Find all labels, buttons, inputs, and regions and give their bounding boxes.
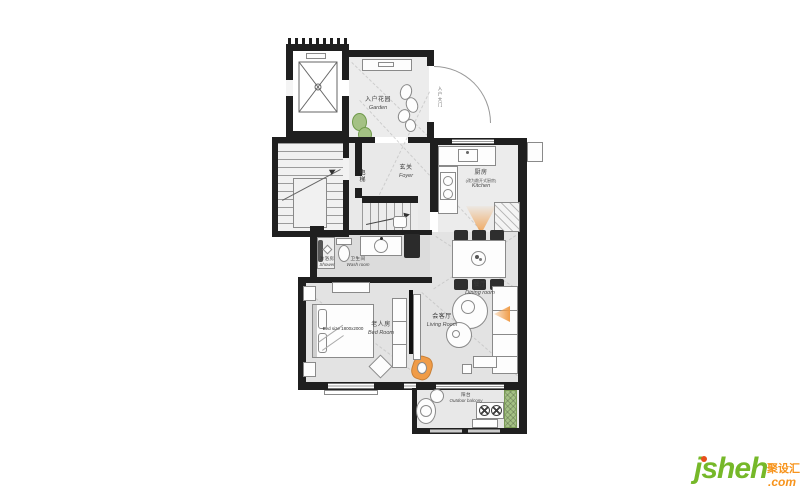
dining-label-cn: 餐厅 [458,282,502,290]
elevator-door [286,80,293,96]
dresser [332,282,370,293]
sink-faucet [466,151,469,154]
equipment-box [472,419,498,428]
floor-plan-canvas: 入户花园 Garden 玄关 Foyer 电梯 入户大门 厨房 (改为敞开式厨房… [0,0,800,494]
kitchen-window [452,139,494,144]
laundry-basin [479,405,490,416]
washroom-label: 卫生间 Wash room [342,256,374,267]
washroom-label-en: Wash room [342,262,374,268]
coffee-table-detail [452,330,460,338]
stair-door-gap [343,158,349,180]
wall [427,50,434,66]
balcony-label: 阳台 Outdoor balcony [446,392,486,403]
internal-stair-edge [362,196,418,203]
cabinet-detail [378,62,394,67]
laundry-unit [404,234,420,258]
living-label-en: Living Room [422,322,462,329]
toilet-tank [336,238,352,245]
wall [272,137,349,143]
balcony-window [430,429,462,433]
wall [518,138,527,390]
stove-burner [443,189,453,199]
balcony-slider-door [436,384,504,389]
stool [462,364,472,374]
foyer-label: 玄关 Foyer [390,165,422,179]
faucet [380,237,383,240]
garden-label-en: Garden [356,105,400,112]
garden-label-cn: 入户花园 [356,97,400,105]
stove-burner [443,176,453,186]
garden-label: 入户花园 Garden [356,97,400,111]
armchair-cushion [417,362,427,374]
headboard [313,305,317,357]
shower-label-en: Shower [315,262,339,268]
nightstand [303,362,316,377]
elevator-car-symbol [296,58,340,116]
logo-cn-text: 聚设汇 [767,460,800,476]
bedroom-label-en: Bed Room [368,330,394,337]
elevator-label: 电梯 [357,169,366,183]
logo-tld-text: .com [768,475,796,489]
kitchen-label-cn: 厨房 [458,170,504,178]
exterior-duct [527,142,543,162]
wardrobe [392,298,407,368]
bedroom-window [328,383,374,389]
dining-label: 餐厅 Dining room [458,282,502,296]
elevator-door [342,80,349,96]
wall [355,188,362,198]
coffee-table-detail [461,300,475,314]
entry-door-label: 入户大门 [437,86,443,108]
foyer-label-cn: 玄关 [390,165,422,173]
planter-strip [504,390,517,428]
logo-dot-icon [701,456,707,462]
centerpiece-detail [479,258,482,261]
bedroom-label-cn: 老人房 [368,322,394,330]
wall [343,137,349,237]
lounge-chair-cushion [420,405,432,417]
balcony-window [468,429,500,433]
pantry-cabinet [494,202,520,232]
sofa [492,286,518,360]
watermark-logo: jsheh 聚设汇 .com [690,448,800,492]
dining-label-en: Dining room [458,290,502,297]
floor-drain [393,216,407,228]
living-label-cn: 会客厅 [422,314,462,322]
bedroom-label: 老人房 Bed Room [368,322,394,336]
wash-basin [374,239,388,253]
kitchen-label-en: Kitchen [458,183,504,190]
kitchen-label: 厨房 (改为敞开式厨房) Kitchen [458,170,504,189]
foyer-label-en: Foyer [390,173,422,180]
window-sill [324,390,378,395]
laundry-basin [491,405,502,416]
wall [349,137,375,143]
wall [286,44,349,51]
balcony-label-en: Outdoor balcony [446,398,486,404]
shower-label: 淋浴房 Shower [315,256,339,267]
tv-console [413,294,421,360]
wall [272,137,278,237]
wardrobe-divider [393,321,406,322]
bench [473,356,497,368]
sofa-cushion-line [493,334,517,335]
wall [349,50,434,57]
balcony-side-table [430,389,444,403]
bed-size-label: Bed size 1800x2000 [320,326,366,331]
wall [430,140,438,212]
nightstand [303,286,316,301]
wardrobe-divider [393,344,406,345]
living-label: 会客厅 Living Room [422,314,462,328]
